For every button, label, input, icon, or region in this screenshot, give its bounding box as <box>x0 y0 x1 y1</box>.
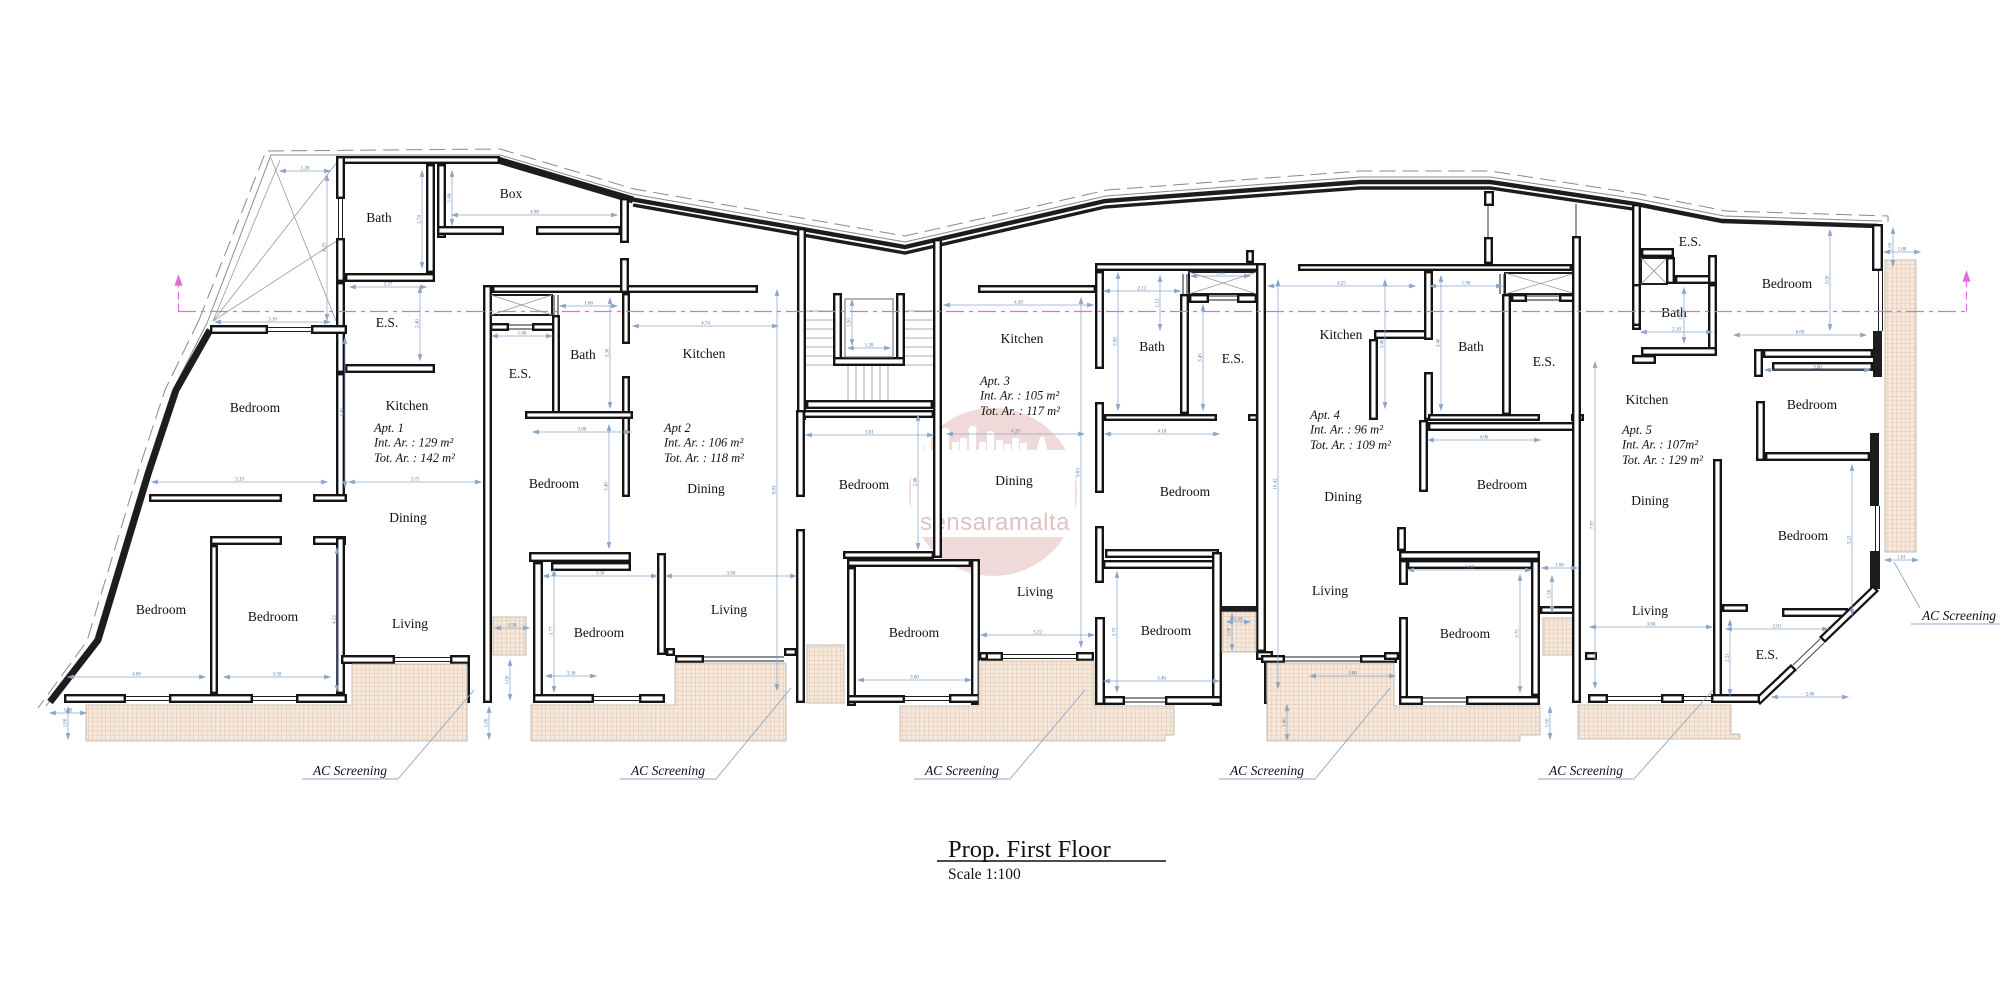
svg-text:2.46: 2.46 <box>914 477 919 486</box>
svg-text:1.50: 1.50 <box>848 318 853 327</box>
svg-text:3.23: 3.23 <box>1848 535 1853 544</box>
svg-text:Dining: Dining <box>1631 493 1669 508</box>
svg-text:3.77: 3.77 <box>550 626 555 635</box>
svg-text:Living: Living <box>711 602 747 617</box>
svg-text:Dining: Dining <box>995 473 1033 488</box>
svg-text:sensaramalta: sensaramalta <box>920 509 1070 536</box>
svg-text:1.20: 1.20 <box>301 167 310 172</box>
svg-text:Bath: Bath <box>1139 339 1165 354</box>
svg-text:Int. Ar. : 96 m²: Int. Ar. : 96 m² <box>1309 423 1383 437</box>
svg-text:Bedroom: Bedroom <box>1477 477 1528 492</box>
svg-text:3.40: 3.40 <box>1381 339 1386 348</box>
svg-text:Bedroom: Bedroom <box>1778 528 1829 543</box>
svg-text:1.00: 1.00 <box>1889 242 1894 251</box>
svg-text:7.87: 7.87 <box>1591 520 1596 529</box>
svg-text:1.50: 1.50 <box>1548 589 1553 598</box>
svg-text:Dining: Dining <box>389 510 427 525</box>
svg-text:Prop. First Floor: Prop. First Floor <box>948 836 1111 863</box>
svg-text:Bedroom: Bedroom <box>1160 484 1211 499</box>
svg-text:6.00: 6.00 <box>1796 331 1805 336</box>
svg-text:3.00: 3.00 <box>727 572 736 577</box>
svg-text:Bedroom: Bedroom <box>136 602 187 617</box>
svg-text:4.00: 4.00 <box>132 673 141 678</box>
svg-text:4.22: 4.22 <box>333 615 338 624</box>
svg-text:3.90: 3.90 <box>1114 337 1119 346</box>
svg-text:Tot. Ar. : 109 m²: Tot. Ar. : 109 m² <box>1310 438 1391 452</box>
svg-text:3.00: 3.00 <box>1348 672 1357 677</box>
svg-text:Apt 2: Apt 2 <box>663 421 691 435</box>
svg-text:9.83: 9.83 <box>773 485 778 494</box>
svg-text:Bath: Bath <box>1458 339 1484 354</box>
svg-text:Bedroom: Bedroom <box>574 625 625 640</box>
svg-text:AC Screening: AC Screening <box>924 763 999 778</box>
svg-text:AC Screening: AC Screening <box>1921 608 1996 623</box>
svg-text:E.S.: E.S. <box>1533 354 1556 369</box>
svg-text:4.40: 4.40 <box>341 408 346 417</box>
svg-text:4.18: 4.18 <box>1158 430 1167 435</box>
svg-text:1.68: 1.68 <box>518 332 527 337</box>
svg-text:Bedroom: Bedroom <box>1787 397 1838 412</box>
svg-text:1.13: 1.13 <box>1156 298 1161 307</box>
svg-text:3.60: 3.60 <box>1465 566 1474 571</box>
svg-text:Int. Ar. : 105 m²: Int. Ar. : 105 m² <box>979 389 1059 403</box>
svg-text:Kitchen: Kitchen <box>1001 331 1044 346</box>
svg-text:1.00: 1.00 <box>1555 564 1564 569</box>
svg-text:AC Screening: AC Screening <box>630 763 705 778</box>
svg-text:3.75: 3.75 <box>1113 627 1118 636</box>
svg-text:1.00: 1.00 <box>506 675 511 684</box>
svg-text:3.46: 3.46 <box>1157 677 1166 682</box>
svg-text:E.S.: E.S. <box>1756 647 1779 662</box>
svg-text:1.00: 1.00 <box>1283 718 1288 727</box>
svg-text:1.00: 1.00 <box>1228 627 1233 636</box>
svg-text:4.98: 4.98 <box>530 211 539 216</box>
svg-text:2.40: 2.40 <box>416 319 421 328</box>
svg-text:Int. Ar. : 107m²: Int. Ar. : 107m² <box>1621 438 1698 452</box>
svg-text:Kitchen: Kitchen <box>683 346 726 361</box>
svg-text:Living: Living <box>1017 584 1053 599</box>
svg-text:Bath: Bath <box>570 347 596 362</box>
svg-text:Scale 1:100: Scale 1:100 <box>948 866 1021 883</box>
svg-text:3.36: 3.36 <box>567 672 576 677</box>
svg-text:Living: Living <box>1312 583 1348 598</box>
svg-text:4.20: 4.20 <box>1011 430 1020 435</box>
svg-text:1.84: 1.84 <box>1216 272 1225 277</box>
svg-text:2.01: 2.01 <box>1773 625 1782 630</box>
svg-text:4.06: 4.06 <box>1480 436 1489 441</box>
svg-text:1.20: 1.20 <box>865 344 874 349</box>
svg-text:1.00: 1.00 <box>485 718 490 727</box>
svg-text:Apt. 1: Apt. 1 <box>373 421 404 435</box>
svg-text:2.74: 2.74 <box>418 215 423 224</box>
svg-text:3.50: 3.50 <box>596 572 605 577</box>
svg-text:4.74: 4.74 <box>701 322 710 327</box>
svg-text:1.00: 1.00 <box>1898 248 1907 253</box>
svg-text:Bedroom: Bedroom <box>889 625 940 640</box>
svg-text:Int. Ar. : 106 m²: Int. Ar. : 106 m² <box>663 436 743 450</box>
svg-text:Bedroom: Bedroom <box>1440 626 1491 641</box>
svg-text:1.68: 1.68 <box>584 302 593 307</box>
svg-text:2.21: 2.21 <box>1726 653 1731 662</box>
svg-text:4.25: 4.25 <box>1337 282 1346 287</box>
svg-text:2.10: 2.10 <box>1672 328 1681 333</box>
svg-text:3.75: 3.75 <box>411 478 420 483</box>
svg-text:1.95: 1.95 <box>1680 311 1685 320</box>
svg-text:3.10: 3.10 <box>268 318 277 323</box>
svg-text:3.22: 3.22 <box>1033 631 1042 636</box>
svg-text:Bedroom: Bedroom <box>529 476 580 491</box>
svg-text:E.S.: E.S. <box>1679 234 1702 249</box>
svg-text:Box: Box <box>500 186 523 201</box>
svg-text:Bedroom: Bedroom <box>839 477 890 492</box>
svg-text:3.19: 3.19 <box>235 478 244 483</box>
svg-text:E.S.: E.S. <box>376 315 399 330</box>
svg-text:3.40: 3.40 <box>1437 338 1442 347</box>
svg-text:1.01: 1.01 <box>1897 556 1906 561</box>
svg-text:Dining: Dining <box>1324 489 1362 504</box>
svg-text:Bedroom: Bedroom <box>1141 623 1192 638</box>
svg-text:Kitchen: Kitchen <box>1320 327 1363 342</box>
svg-text:3.00: 3.00 <box>910 676 919 681</box>
svg-text:Apt. 3: Apt. 3 <box>979 374 1010 388</box>
svg-text:4.19: 4.19 <box>323 243 328 252</box>
svg-text:AC Screening: AC Screening <box>312 763 387 778</box>
svg-text:1.50: 1.50 <box>508 624 517 629</box>
svg-text:9.83: 9.83 <box>1077 468 1082 477</box>
svg-text:3.30: 3.30 <box>606 348 611 357</box>
svg-text:1.00: 1.00 <box>64 718 69 727</box>
svg-text:Kitchen: Kitchen <box>1626 392 1669 407</box>
svg-text:3.75: 3.75 <box>1516 629 1521 638</box>
svg-text:1.90: 1.90 <box>1462 282 1471 287</box>
svg-text:1.00: 1.00 <box>1234 618 1243 623</box>
svg-text:Int. Ar. : 129 m²: Int. Ar. : 129 m² <box>373 436 453 450</box>
svg-text:3.00: 3.00 <box>1826 275 1831 284</box>
svg-text:Dining: Dining <box>687 481 725 496</box>
svg-text:Apt. 4: Apt. 4 <box>1309 408 1340 422</box>
svg-text:1.44: 1.44 <box>448 193 453 202</box>
svg-text:Apt. 5: Apt. 5 <box>1621 423 1652 437</box>
svg-text:3.01: 3.01 <box>865 431 874 436</box>
svg-text:Living: Living <box>392 616 428 631</box>
svg-text:2.37: 2.37 <box>384 283 393 288</box>
svg-text:Bedroom: Bedroom <box>248 609 299 624</box>
svg-text:3.45: 3.45 <box>1199 353 1204 362</box>
svg-text:2.12: 2.12 <box>1138 287 1147 292</box>
svg-text:Bath: Bath <box>366 210 392 225</box>
svg-text:Bedroom: Bedroom <box>230 400 281 415</box>
svg-text:E.S.: E.S. <box>509 366 532 381</box>
svg-text:Kitchen: Kitchen <box>386 398 429 413</box>
svg-text:Tot. Ar. : 129 m²: Tot. Ar. : 129 m² <box>1622 453 1703 467</box>
svg-text:Living: Living <box>1632 603 1668 618</box>
svg-text:1.00: 1.00 <box>1546 718 1551 727</box>
svg-text:Tot. Ar. : 142 m²: Tot. Ar. : 142 m² <box>374 451 455 465</box>
svg-text:AC Screening: AC Screening <box>1548 763 1623 778</box>
svg-text:Tot. Ar. : 117 m²: Tot. Ar. : 117 m² <box>980 404 1060 418</box>
svg-text:10.42: 10.42 <box>1274 478 1279 490</box>
svg-text:3.60: 3.60 <box>1647 623 1656 628</box>
svg-text:3.50: 3.50 <box>273 673 282 678</box>
svg-text:Tot. Ar. : 118 m²: Tot. Ar. : 118 m² <box>664 451 744 465</box>
svg-text:3.40: 3.40 <box>605 482 610 491</box>
svg-text:4.20: 4.20 <box>1014 301 1023 306</box>
svg-text:E.S.: E.S. <box>1222 351 1245 366</box>
svg-text:3.00: 3.00 <box>1813 366 1822 371</box>
svg-text:3.00: 3.00 <box>578 428 587 433</box>
svg-text:2.86: 2.86 <box>1806 693 1815 698</box>
svg-text:AC Screening: AC Screening <box>1229 763 1304 778</box>
svg-text:Bedroom: Bedroom <box>1762 276 1813 291</box>
